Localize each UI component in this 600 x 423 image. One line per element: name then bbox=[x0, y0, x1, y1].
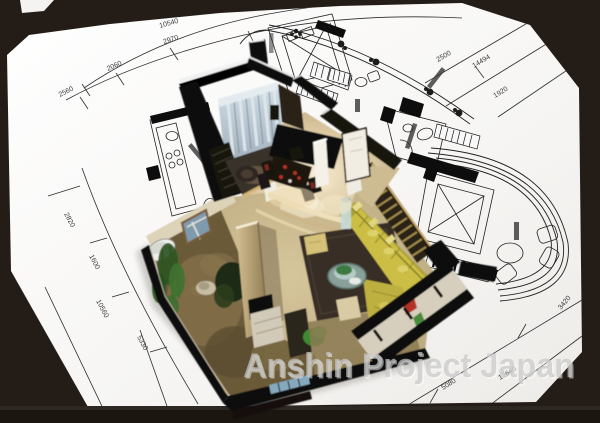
svg-text:Anshin Project Japan: Anshin Project Japan bbox=[243, 347, 574, 385]
